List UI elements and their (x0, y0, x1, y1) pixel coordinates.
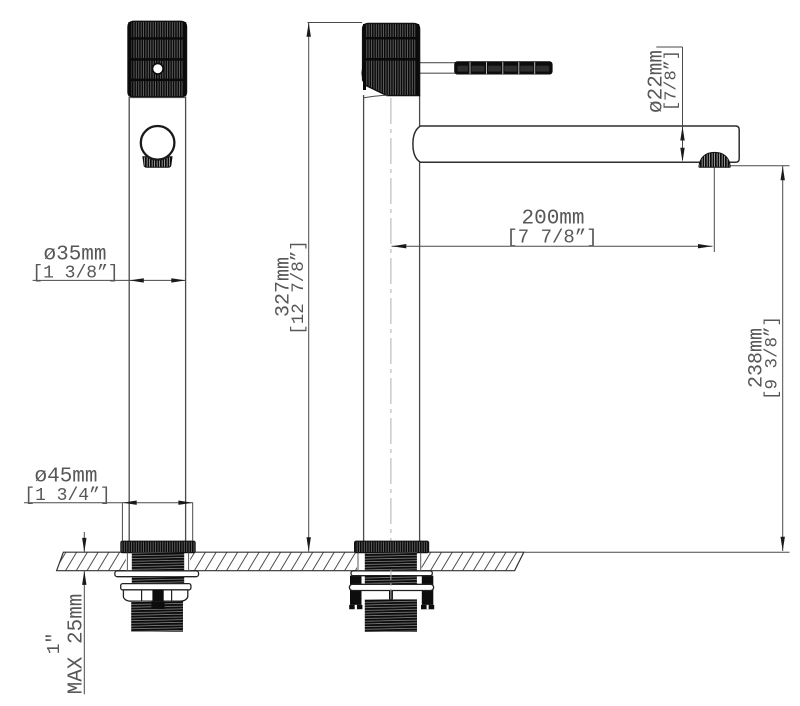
svg-text:MAX 25mm: MAX 25mm (66, 594, 89, 695)
svg-text:1″: 1″ (45, 633, 65, 655)
svg-text:[12 7/8”]: [12 7/8”] (289, 240, 309, 335)
svg-text:[1 3/8”]: [1 3/8”] (32, 264, 118, 284)
svg-text:[7/8”]: [7/8”] (663, 50, 682, 111)
svg-text:[7 7/8”]: [7 7/8”] (506, 227, 597, 249)
svg-text:[1 3/4”]: [1 3/4”] (24, 486, 110, 506)
svg-text:[9 3/8”]: [9 3/8”] (763, 316, 783, 400)
